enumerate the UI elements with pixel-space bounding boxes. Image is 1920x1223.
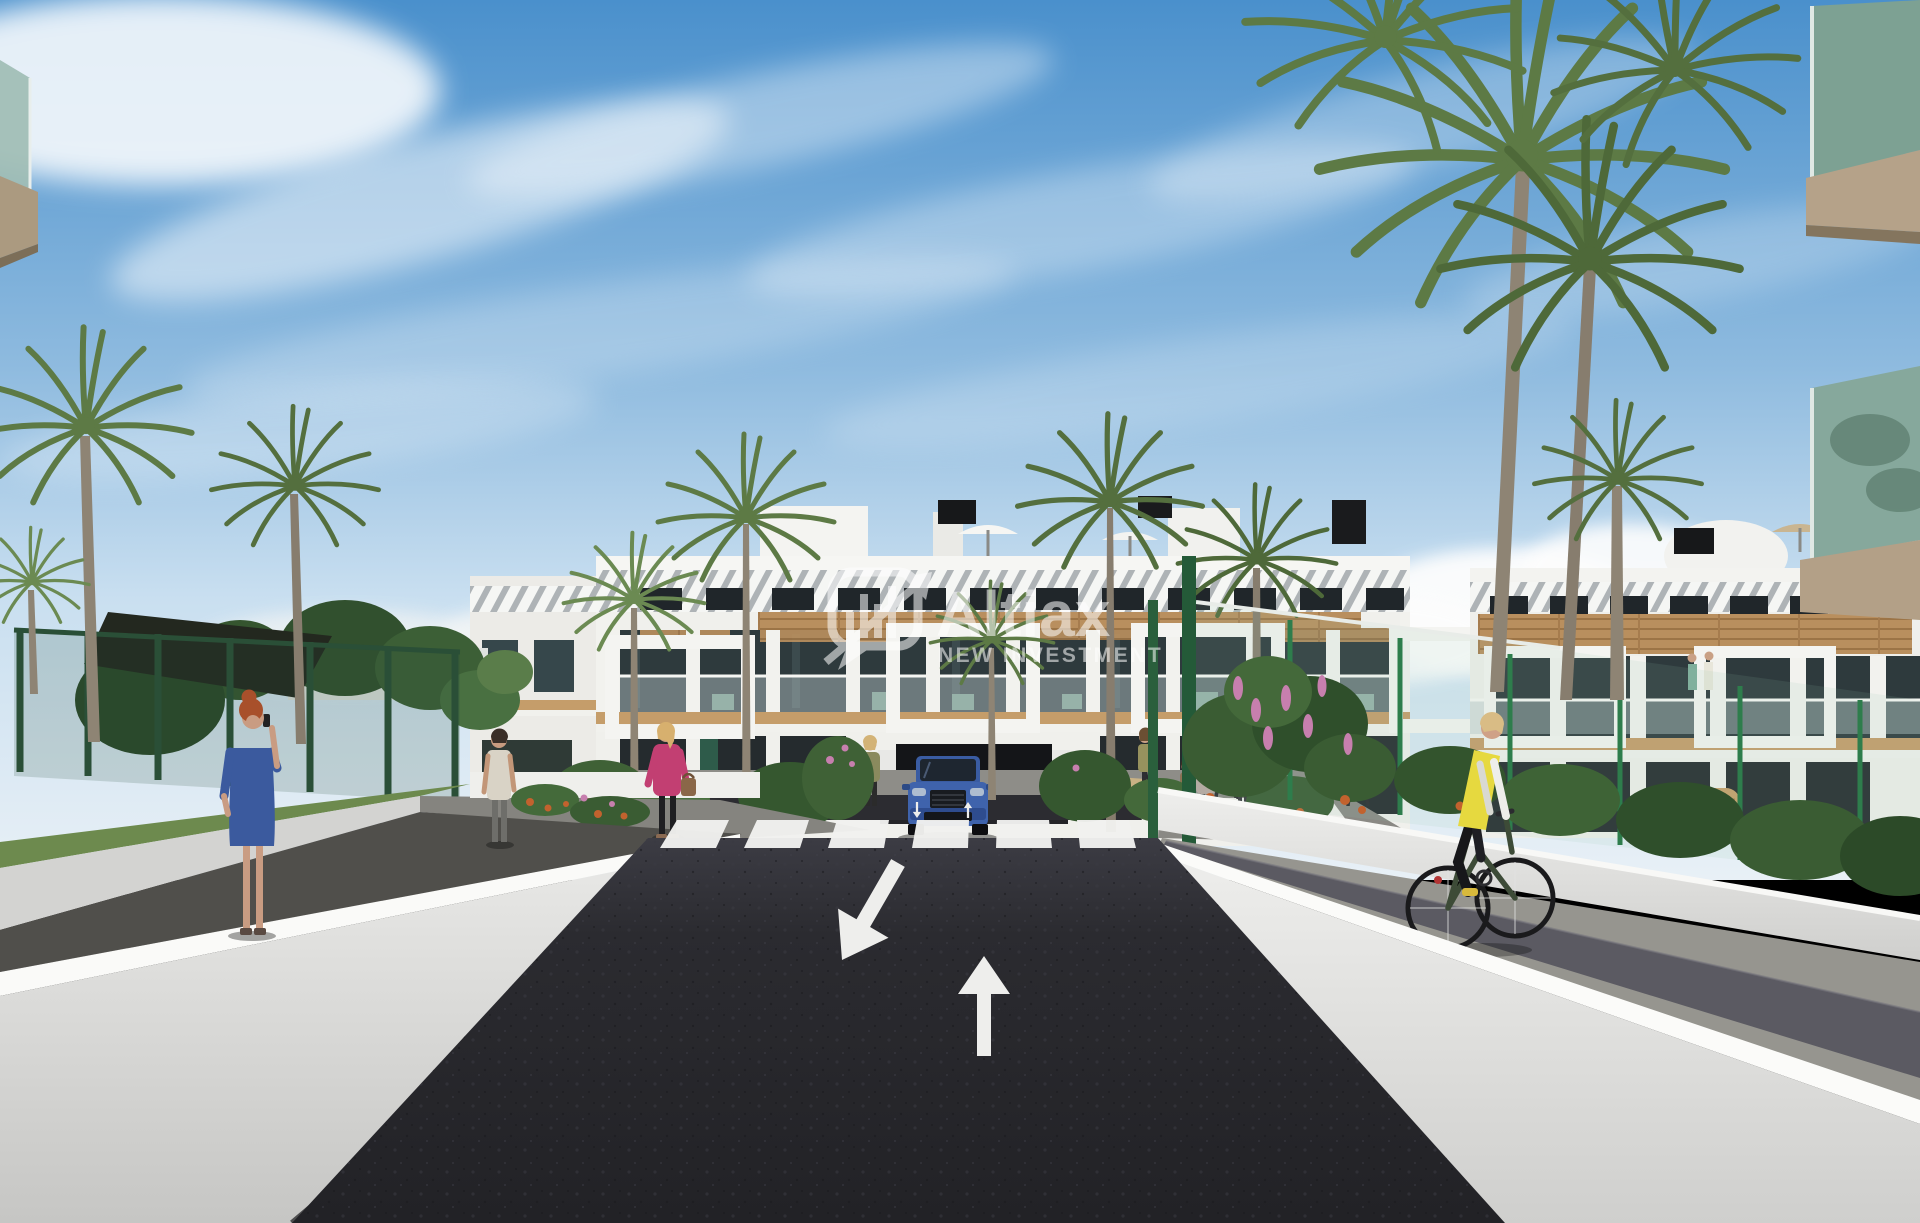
cyclist-shoe	[1462, 888, 1478, 896]
render-canvas: Altiax NEW INVESTMENT	[0, 0, 1920, 1223]
handbag	[681, 778, 696, 796]
roof-vent-box	[1332, 500, 1366, 544]
bike-rear-light	[1434, 876, 1442, 884]
roof-vent-box	[938, 500, 976, 524]
phone	[263, 714, 270, 727]
watermark-brand: Altiax	[936, 578, 1111, 650]
scene-svg: Altiax NEW INVESTMENT	[0, 0, 1920, 1223]
watermark-tagline: NEW INVESTMENT	[938, 644, 1163, 667]
roof-vent-box	[1674, 528, 1714, 554]
